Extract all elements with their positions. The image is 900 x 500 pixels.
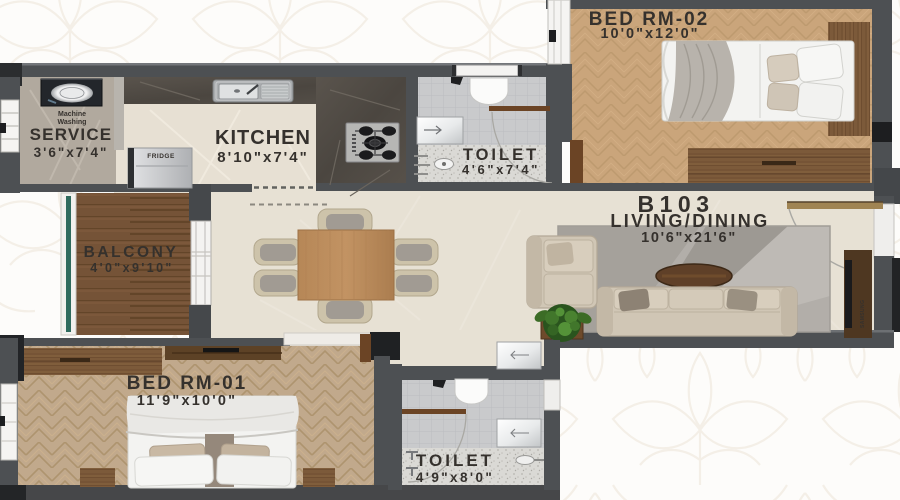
svg-text:TOILET: TOILET [416,451,494,470]
svg-text:FRIDGE: FRIDGE [147,153,175,160]
svg-text:8'10"x7'4": 8'10"x7'4" [217,149,308,166]
svg-text:4'6"x7'4": 4'6"x7'4" [462,162,540,177]
svg-text:10'6"x21'6": 10'6"x21'6" [641,230,737,246]
svg-text:11'9"x10'0": 11'9"x10'0" [137,393,238,409]
svg-text:LIVING/DINING: LIVING/DINING [610,211,769,231]
svg-text:SERVICE: SERVICE [30,125,113,144]
svg-text:SAMSUNG: SAMSUNG [860,300,866,328]
svg-text:10'0"x12'0": 10'0"x12'0" [600,26,699,42]
svg-text:4'9"x8'0": 4'9"x8'0" [416,470,494,485]
svg-text:Machine: Machine [58,111,86,118]
svg-text:4'0"x9'10": 4'0"x9'10" [90,261,174,275]
svg-text:BED RM-01: BED RM-01 [127,373,247,394]
svg-text:3'6"x7'4": 3'6"x7'4" [34,145,109,160]
svg-text:BALCONY: BALCONY [84,244,179,261]
svg-text:KITCHEN: KITCHEN [215,127,311,149]
